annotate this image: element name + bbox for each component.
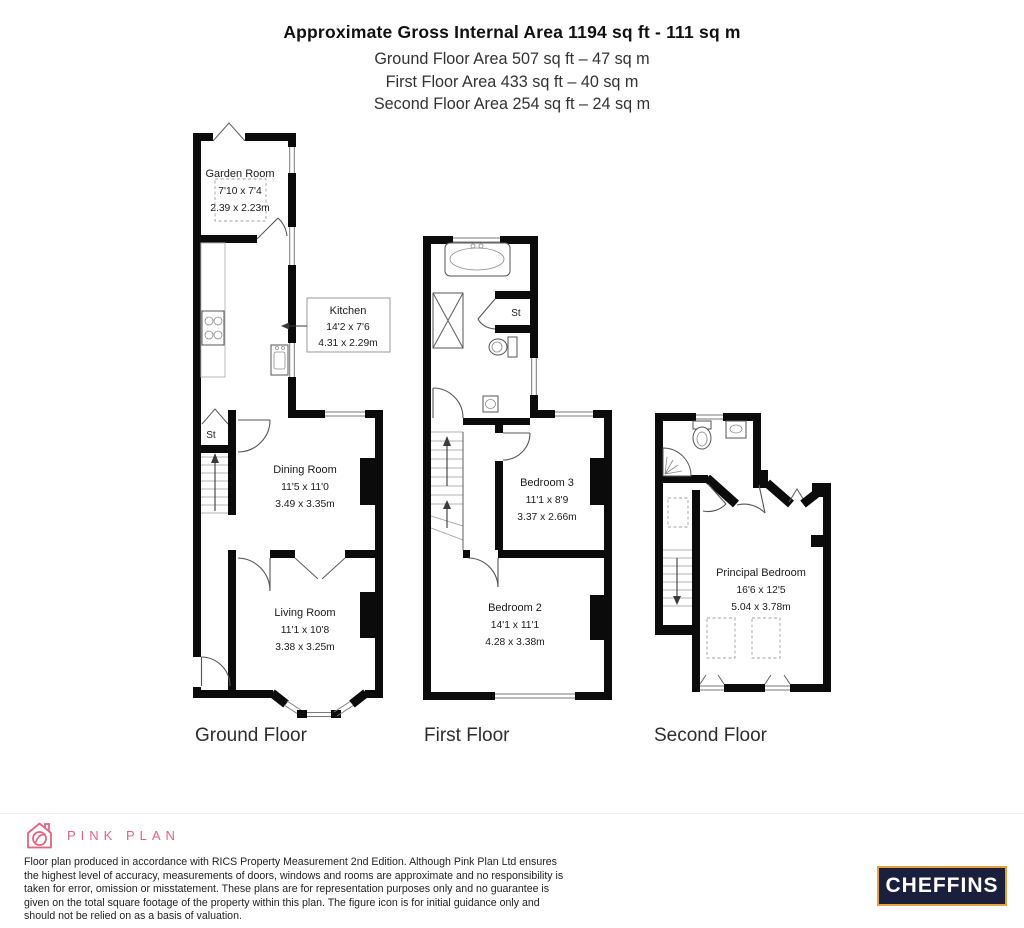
- shower-room-fixtures: [663, 421, 746, 476]
- room-label-living-room: Living Room 11'1 x 10'8 3.38 x 3.25m: [274, 607, 335, 653]
- pink-plan-house-icon: [24, 820, 55, 851]
- svg-text:5.04 x 3.78m: 5.04 x 3.78m: [731, 602, 791, 613]
- svg-text:11'5 x 11'0: 11'5 x 11'0: [281, 482, 329, 493]
- room-label-bedroom2: Bedroom 2 14'1 x 11'1 4.28 x 3.38m: [485, 602, 545, 648]
- svg-text:Garden Room: Garden Room: [205, 168, 274, 180]
- cheffins-logo-inner: CHEFFINS: [879, 868, 1005, 904]
- svg-text:16'6 x 12'5: 16'6 x 12'5: [736, 585, 785, 596]
- header: Approximate Gross Internal Area 1194 sq …: [0, 22, 1024, 116]
- page-title: Approximate Gross Internal Area 1194 sq …: [0, 22, 1024, 43]
- second-floor-plan: Principal Bedroom 16'6 x 12'5 5.04 x 3.7…: [653, 410, 835, 707]
- svg-text:14'1 x 11'1: 14'1 x 11'1: [491, 620, 540, 631]
- svg-text:Kitchen: Kitchen: [330, 305, 367, 317]
- svg-text:Principal Bedroom: Principal Bedroom: [716, 567, 806, 579]
- svg-text:4.31 x 2.29m: 4.31 x 2.29m: [318, 338, 378, 349]
- first-floor-plan: St Bedroom 3 11'1 x 8'9 3.37 x 2.66m Bed…: [420, 228, 615, 710]
- svg-text:Bedroom 3: Bedroom 3: [520, 477, 574, 489]
- first-floor-label: First Floor: [424, 725, 510, 747]
- svg-text:14'2 x 7'6: 14'2 x 7'6: [326, 322, 370, 333]
- svg-text:Living Room: Living Room: [274, 607, 335, 619]
- footer-divider: [0, 813, 1024, 814]
- room-label-principal-bedroom: Principal Bedroom 16'6 x 12'5 5.04 x 3.7…: [716, 567, 806, 613]
- ground-floor-label: Ground Floor: [195, 725, 307, 747]
- stairs-first: [431, 432, 463, 550]
- pink-plan-brand: PINK PLAN: [24, 820, 180, 851]
- cheffins-wordmark: CHEFFINS: [886, 874, 999, 898]
- room-label-dining-room: Dining Room 11'5 x 11'0 3.49 x 3.35m: [273, 464, 337, 510]
- disclaimer-text: Floor plan produced in accordance with R…: [24, 856, 570, 924]
- cheffins-logo: CHEFFINS: [877, 866, 1007, 906]
- svg-text:7'10 x 7'4: 7'10 x 7'4: [218, 186, 262, 197]
- svg-text:3.37 x 2.66m: 3.37 x 2.66m: [517, 512, 577, 523]
- svg-text:3.38 x 3.25m: 3.38 x 3.25m: [275, 642, 335, 653]
- room-label-garden-room: Garden Room 7'10 x 7'4 2.39 x 2.23m: [205, 168, 274, 214]
- pink-plan-wordmark: PINK PLAN: [67, 828, 180, 843]
- first-floor-area: First Floor Area 433 sq ft – 40 sq m: [0, 71, 1024, 94]
- stairs-second: [663, 550, 692, 606]
- ground-floor-plan: Garden Room 7'10 x 7'4 2.39 x 2.23m Kitc…: [185, 115, 395, 723]
- store-label-first: St: [511, 308, 521, 319]
- stairs-ground: [201, 453, 228, 513]
- svg-text:Dining Room: Dining Room: [273, 464, 337, 476]
- svg-text:Bedroom 2: Bedroom 2: [488, 602, 542, 614]
- store-label-ground: St: [206, 430, 216, 441]
- svg-text:2.39 x 2.23m: 2.39 x 2.23m: [210, 203, 270, 214]
- ground-floor-area: Ground Floor Area 507 sq ft – 47 sq m: [0, 48, 1024, 71]
- svg-text:4.28 x 3.38m: 4.28 x 3.38m: [485, 637, 545, 648]
- second-floor-area: Second Floor Area 254 sq ft – 24 sq m: [0, 93, 1024, 116]
- svg-text:11'1 x 10'8: 11'1 x 10'8: [281, 625, 330, 636]
- second-floor-label: Second Floor: [654, 725, 767, 747]
- svg-text:3.49 x 3.35m: 3.49 x 3.35m: [275, 499, 335, 510]
- kitchen-fixtures: [201, 243, 288, 377]
- room-label-bedroom3: Bedroom 3 11'1 x 8'9 3.37 x 2.66m: [517, 477, 577, 523]
- bay-window: [272, 693, 366, 718]
- svg-text:11'1 x 8'9: 11'1 x 8'9: [526, 495, 569, 506]
